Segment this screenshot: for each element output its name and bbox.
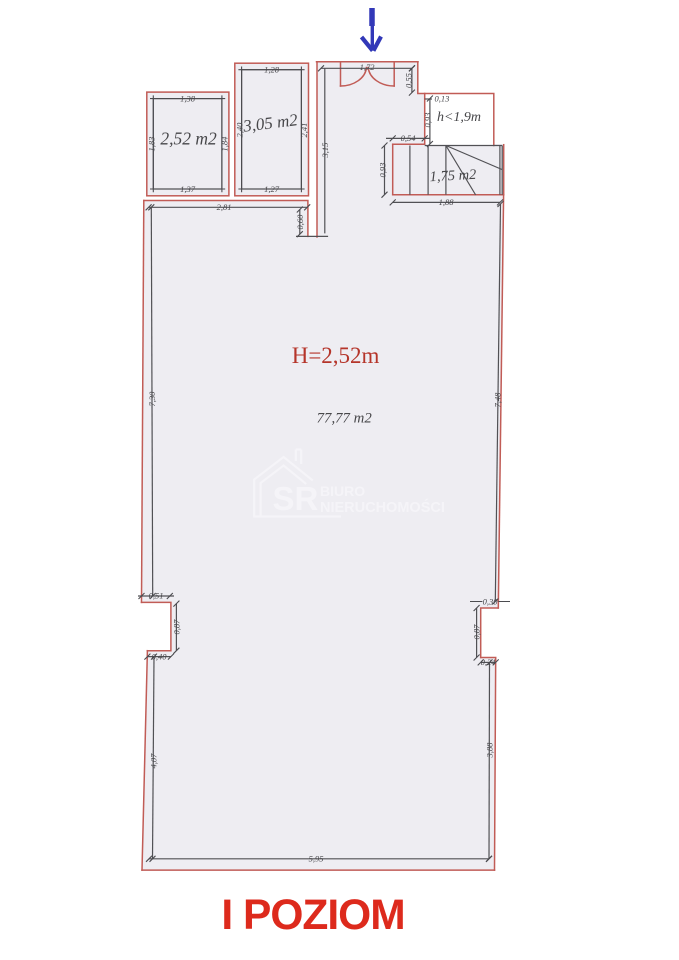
svg-text:3,15: 3,15 <box>320 143 330 159</box>
svg-text:0,87: 0,87 <box>171 619 181 635</box>
svg-text:2,41: 2,41 <box>299 123 309 138</box>
svg-text:1,83: 1,83 <box>147 137 157 152</box>
svg-text:1,27: 1,27 <box>264 184 280 194</box>
svg-text:1,28: 1,28 <box>264 64 280 74</box>
svg-text:h<1,9m: h<1,9m <box>437 110 481 125</box>
svg-text:1,88: 1,88 <box>439 197 455 207</box>
svg-text:0,55: 0,55 <box>404 73 414 88</box>
svg-text:NIERUCHOMOŚCI: NIERUCHOMOŚCI <box>320 498 445 516</box>
svg-text:0,93: 0,93 <box>377 163 387 178</box>
svg-text:0,24: 0,24 <box>481 657 497 667</box>
svg-text:BIURO: BIURO <box>320 483 365 499</box>
svg-text:0,93: 0,93 <box>423 113 433 128</box>
svg-text:1,75 m2: 1,75 m2 <box>429 167 477 185</box>
svg-text:H=2,52m: H=2,52m <box>292 343 380 368</box>
svg-text:5,95: 5,95 <box>309 854 324 864</box>
svg-text:4,07: 4,07 <box>148 753 158 769</box>
svg-text:0,13: 0,13 <box>435 94 450 104</box>
svg-text:3,88: 3,88 <box>484 742 494 759</box>
svg-text:SR: SR <box>273 480 319 517</box>
svg-text:0,54: 0,54 <box>401 133 417 143</box>
svg-text:77,77 m2: 77,77 m2 <box>317 411 373 427</box>
svg-text:2,52 m2: 2,52 m2 <box>160 129 217 149</box>
svg-text:1,72: 1,72 <box>360 62 376 72</box>
svg-text:1,37: 1,37 <box>180 184 196 194</box>
svg-text:0,30: 0,30 <box>483 596 499 606</box>
svg-text:7,48: 7,48 <box>493 392 503 408</box>
svg-text:I POZIOM: I POZIOM <box>221 892 404 939</box>
svg-text:0,87: 0,87 <box>472 624 482 640</box>
svg-text:0,51: 0,51 <box>149 591 164 601</box>
svg-text:1,84: 1,84 <box>220 136 230 152</box>
svg-text:1,38: 1,38 <box>180 93 196 103</box>
svg-text:2,81: 2,81 <box>217 202 232 212</box>
svg-text:7,30: 7,30 <box>147 391 157 407</box>
svg-text:0,40: 0,40 <box>152 651 168 661</box>
svg-text:0,60: 0,60 <box>295 214 305 230</box>
